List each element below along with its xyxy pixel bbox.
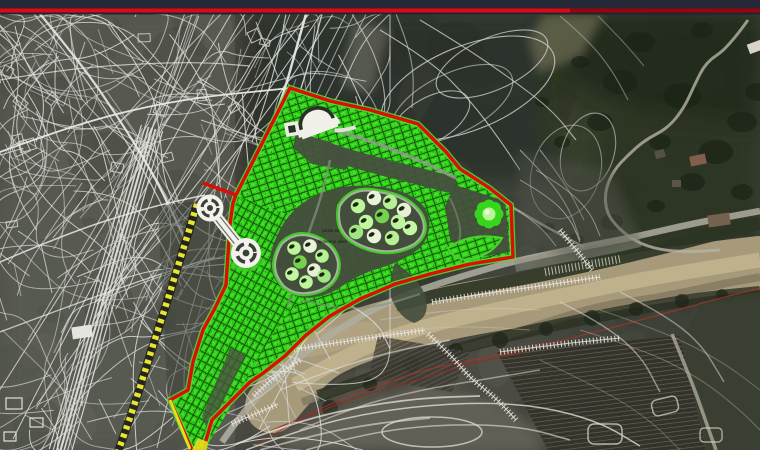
svg-text:dinlenme alani: dinlenme alani	[318, 239, 347, 244]
svg-text:piknik ve: piknik ve	[322, 228, 340, 233]
